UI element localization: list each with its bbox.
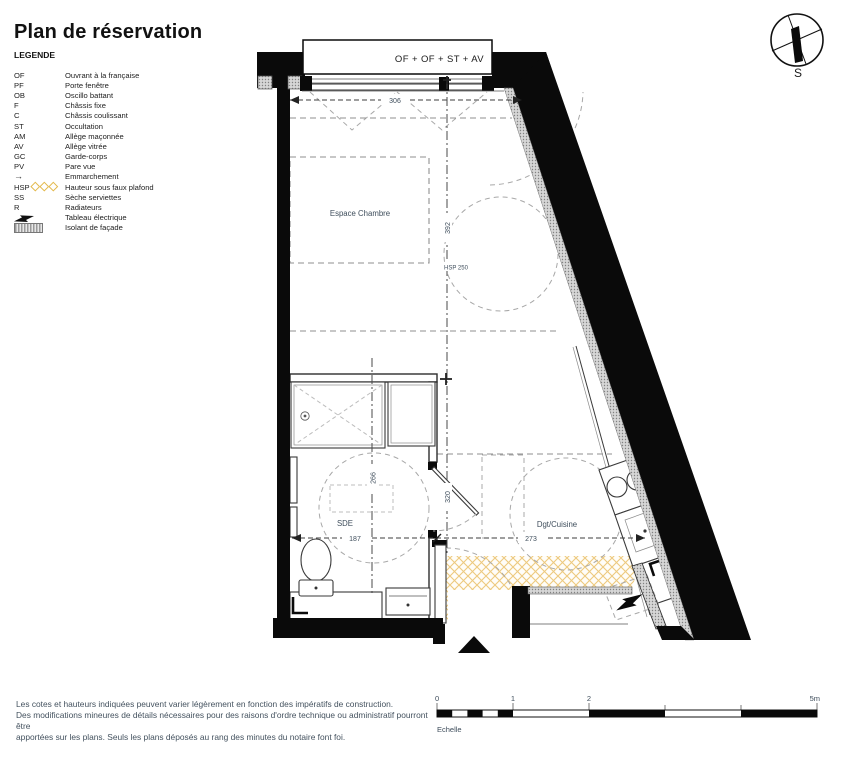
insulation-square-left [258, 76, 272, 89]
legend-label: Oscillo battant [65, 91, 244, 100]
legend-row: OBOscillo battant [14, 90, 244, 100]
scale-label-1: 1 [511, 694, 515, 703]
insulation-square-left2 [288, 76, 302, 89]
legend-row: OFOuvrant à la française [14, 70, 244, 80]
compass: S [771, 14, 823, 80]
sde-door-swing [433, 514, 476, 531]
legend-row: PVPare vue [14, 162, 244, 172]
scale-caption: Echelle [437, 725, 462, 734]
legend-abbr: ST [14, 122, 65, 131]
legend: LEGENDE OFOuvrant à la française PFPorte… [14, 50, 244, 233]
turning-circle-chambre [444, 197, 558, 311]
legend-label: Emmarchement [65, 172, 244, 181]
lightning-icon [14, 213, 65, 223]
window-swing-right [397, 92, 487, 130]
washer-unit [386, 588, 430, 615]
legend-row: STOccultation [14, 121, 244, 131]
legend-abbr: OF [14, 71, 65, 80]
legend-row: Isolant de façade [14, 223, 244, 233]
entry-door-leaf [435, 545, 446, 623]
disclaimer-text: Les cotes et hauteurs indiquées peuvent … [16, 699, 436, 743]
niche-left-jamb [512, 586, 530, 638]
compass-needle-south [791, 26, 803, 63]
dim-306: 306 [389, 98, 401, 105]
scale-seg [437, 710, 452, 717]
shower-drain-dot [304, 415, 307, 418]
sink-drain-dot [643, 529, 646, 532]
legend-abbr: SS [14, 193, 65, 202]
legend-row: CChâssis coulissant [14, 111, 244, 121]
legend-row: Tableau électrique [14, 213, 244, 223]
compass-south-label: S [794, 66, 802, 80]
hob-burner-2 [607, 477, 627, 497]
dim-187: 187 [349, 536, 361, 543]
towel-radiator-2 [290, 507, 297, 537]
partition-wall-top [290, 374, 437, 382]
legend-row: AVAllège vitrée [14, 141, 244, 151]
scale-seg [498, 710, 513, 717]
scale-label-5m: 5m [810, 694, 820, 703]
electric-panel-lightning-icon [614, 593, 646, 611]
wall-bottom-step [433, 624, 445, 644]
window-label: OF + OF + ST + AV [395, 54, 484, 65]
legend-abbr: PV [14, 162, 65, 171]
legend-label: Occultation [65, 122, 244, 131]
cupboard [388, 382, 435, 446]
legend-label: Allège maçonnée [65, 132, 244, 141]
sde-reserve-zone [330, 485, 393, 512]
legend-row: PFPorte fenêtre [14, 80, 244, 90]
dim-273: 273 [525, 536, 537, 543]
legend-label: Isolant de façade [65, 223, 244, 232]
legend-label: Porte fenêtre [65, 81, 244, 90]
window-jamb-right [482, 76, 494, 91]
legend-label: Sèche serviettes [65, 193, 244, 202]
legend-heading: LEGENDE [14, 50, 244, 60]
toilet-bowl [301, 539, 331, 581]
hsp-diamonds-icon [30, 183, 57, 192]
niche-insulation-band [528, 587, 632, 594]
hsp-abbr: HSP [14, 183, 30, 192]
emmarchement-arrow [458, 636, 490, 653]
arrow-right-icon: → [14, 172, 65, 181]
window-jamb-left [300, 76, 312, 91]
legend-label: Tableau électrique [65, 213, 244, 222]
dim-266: 266 [371, 472, 378, 484]
door-jamb-bottom [428, 530, 437, 538]
legend-abbr: R [14, 203, 65, 212]
legend-row: FChâssis fixe [14, 101, 244, 111]
hsp-label: HSP 250 [444, 266, 469, 272]
legend-abbr: PF [14, 81, 65, 90]
scale-seg [589, 710, 665, 717]
legend-row: AMAllège maçonnée [14, 131, 244, 141]
legend-row: HSPHauteur sous faux plafond [14, 182, 244, 192]
legend-label: Hauteur sous faux plafond [65, 183, 244, 192]
room-label-chambre: Espace Chambre [330, 209, 390, 218]
legend-row: SSSèche serviettes [14, 192, 244, 202]
toilet-dot [315, 587, 318, 590]
scale-bar: 0 1 2 5m Echelle [435, 694, 820, 734]
facade-insulation-swatch [14, 223, 65, 233]
legend-label: Ouvrant à la française [65, 71, 244, 80]
appliance-zone [482, 455, 524, 538]
disclaimer-line: Les cotes et hauteurs indiquées peuvent … [16, 699, 436, 710]
dim-320: 320 [445, 491, 452, 503]
window-bay: OF + OF + ST + AV [300, 40, 504, 91]
towel-radiator-1 [290, 457, 297, 503]
legend-row: →Emmarchement [14, 172, 244, 182]
legend-abbr: HSP [14, 183, 65, 192]
legend-label: Châssis fixe [65, 101, 244, 110]
wall-left [277, 88, 290, 622]
legend-label: Châssis coulissant [65, 111, 244, 120]
legend-row: RRadiateurs [14, 202, 244, 212]
legend-row: GCGarde-corps [14, 152, 244, 162]
legend-label: Radiateurs [65, 203, 244, 212]
scale-label-2: 2 [587, 694, 591, 703]
dim-392: 392 [445, 222, 452, 234]
room-label-sde: SDE [337, 519, 353, 528]
legend-abbr: F [14, 101, 65, 110]
room-label-cuisine: Dgt/Cuisine [537, 520, 577, 529]
legend-abbr: OB [14, 91, 65, 100]
plan-sheet: OF + OF + ST + AV 306 392 [0, 0, 846, 760]
legend-abbr: AV [14, 142, 65, 151]
sde-door-leaf [432, 467, 479, 515]
page-title: Plan de réservation [14, 21, 202, 44]
disclaimer-line: apportées sur les plans. Seuls les plans… [16, 732, 436, 743]
legend-label: Pare vue [65, 162, 244, 171]
dim-arrow [290, 96, 299, 104]
washer-unit-dot [407, 604, 410, 607]
legend-abbr: AM [14, 132, 65, 141]
scale-seg [467, 710, 482, 717]
legend-abbr: GC [14, 152, 65, 161]
scale-seg [741, 710, 817, 717]
wall-bottom [273, 618, 443, 638]
legend-abbr: C [14, 111, 65, 120]
legend-label: Allège vitrée [65, 142, 244, 151]
window-frame [308, 84, 487, 90]
legend-label: Garde-corps [65, 152, 244, 161]
disclaimer-line: Des modifications mineures de détails né… [16, 710, 436, 732]
